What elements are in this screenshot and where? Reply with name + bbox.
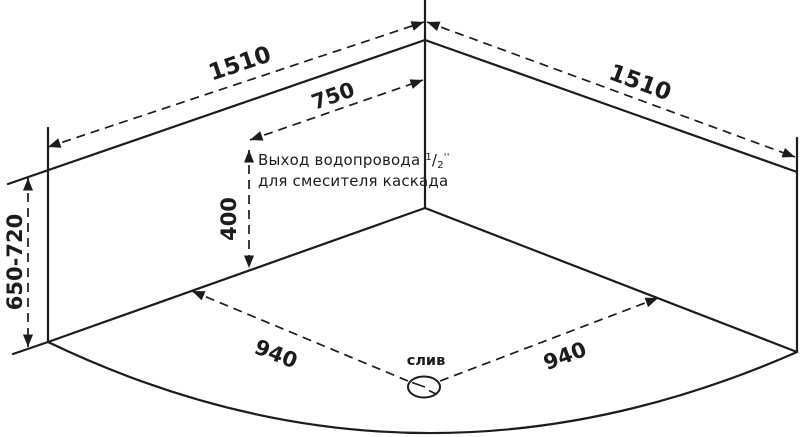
drain-icon xyxy=(408,377,440,398)
dim-label-floor-right-940: 940 xyxy=(540,337,589,375)
outlet-annotation-line2: для смесителя каскада xyxy=(258,174,450,190)
dim-line-floor-left-940 xyxy=(192,291,408,381)
dim-label-outlet-750: 750 xyxy=(308,77,357,114)
right-floor-edge xyxy=(425,208,797,352)
outlet-text: Выход водопровода xyxy=(258,151,420,169)
diagram-canvas: 1510 1510 750 400 650-720 940 940 слив xyxy=(0,0,800,437)
dim-label-outlet-400: 400 xyxy=(217,197,241,241)
outlet-annotation-line1: Выход водопровода 1/2'' xyxy=(258,150,450,174)
drain-mark-long xyxy=(412,383,425,388)
left-bottom-tick xyxy=(13,342,48,354)
dimension-labels: 1510 1510 750 400 650-720 940 940 слив xyxy=(3,42,675,375)
dim-line-top-left-1510 xyxy=(48,22,424,147)
right-wall-top-edge xyxy=(425,40,797,172)
outlet-fraction-numerator: 1 xyxy=(425,152,432,163)
dim-label-height-650-720: 650-720 xyxy=(3,214,27,310)
drain-mark-short xyxy=(429,391,436,395)
dimension-lines xyxy=(28,22,795,381)
dim-line-top-right-1510 xyxy=(427,22,795,157)
dim-label-floor-left-940: 940 xyxy=(251,335,301,373)
dim-label-top-left-1510: 1510 xyxy=(206,42,275,87)
drain-label: слив xyxy=(407,353,446,369)
bathtub-outline xyxy=(8,0,797,433)
outlet-inch-mark: '' xyxy=(444,152,450,163)
outlet-annotation: Выход водопровода 1/2'' для смесителя ка… xyxy=(258,150,450,189)
bathtub-installation-diagram: 1510 1510 750 400 650-720 940 940 слив В… xyxy=(0,0,800,437)
